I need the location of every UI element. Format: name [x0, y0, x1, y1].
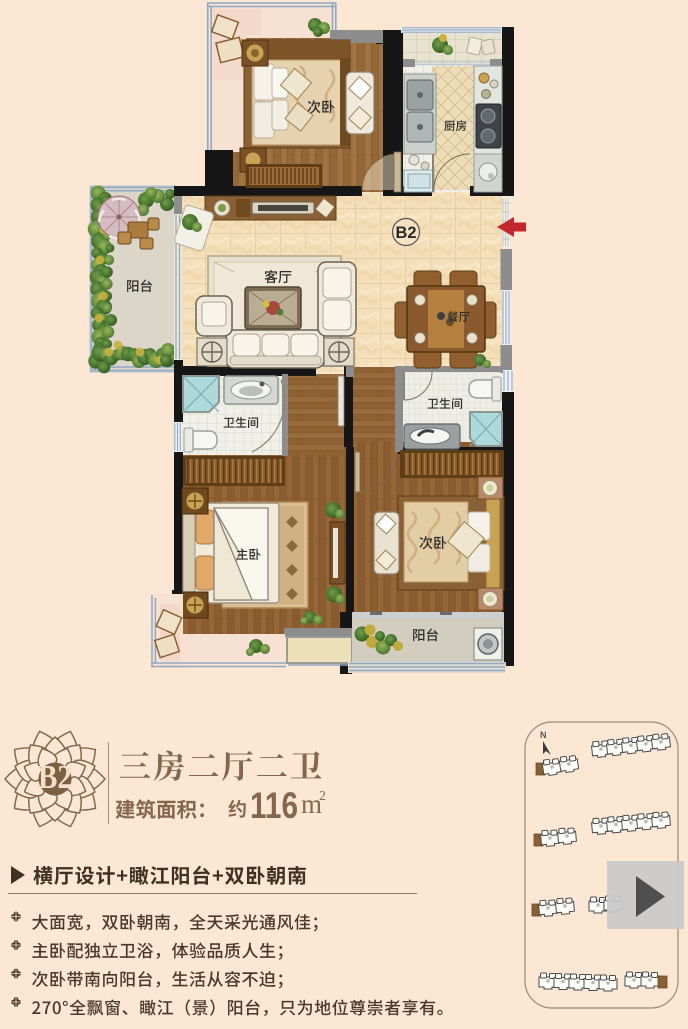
svg-text:N: N — [540, 730, 547, 740]
svg-text:2: 2 — [319, 789, 326, 804]
svg-text:B2: B2 — [395, 224, 416, 242]
svg-text:116: 116 — [250, 785, 298, 826]
svg-text:B2: B2 — [38, 759, 72, 796]
